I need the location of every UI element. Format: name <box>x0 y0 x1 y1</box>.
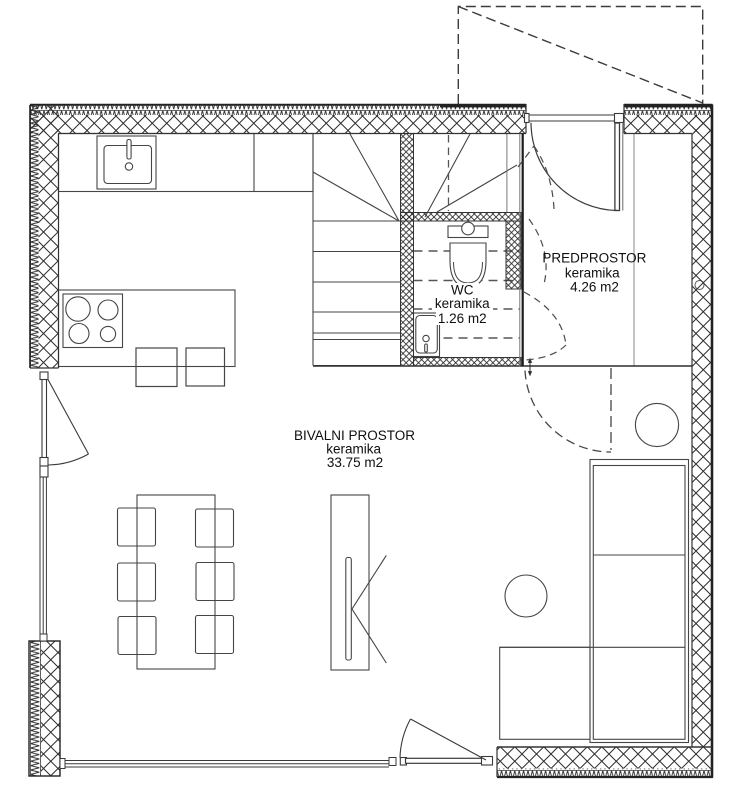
svg-text:1.26 m2: 1.26 m2 <box>438 311 487 326</box>
svg-text:33.75 m2: 33.75 m2 <box>327 455 383 470</box>
svg-text:keramika: keramika <box>435 296 490 311</box>
svg-text:keramika: keramika <box>565 265 620 280</box>
svg-text:4.26 m2: 4.26 m2 <box>570 280 619 295</box>
svg-text:PREDPROSTOR: PREDPROSTOR <box>542 251 646 266</box>
